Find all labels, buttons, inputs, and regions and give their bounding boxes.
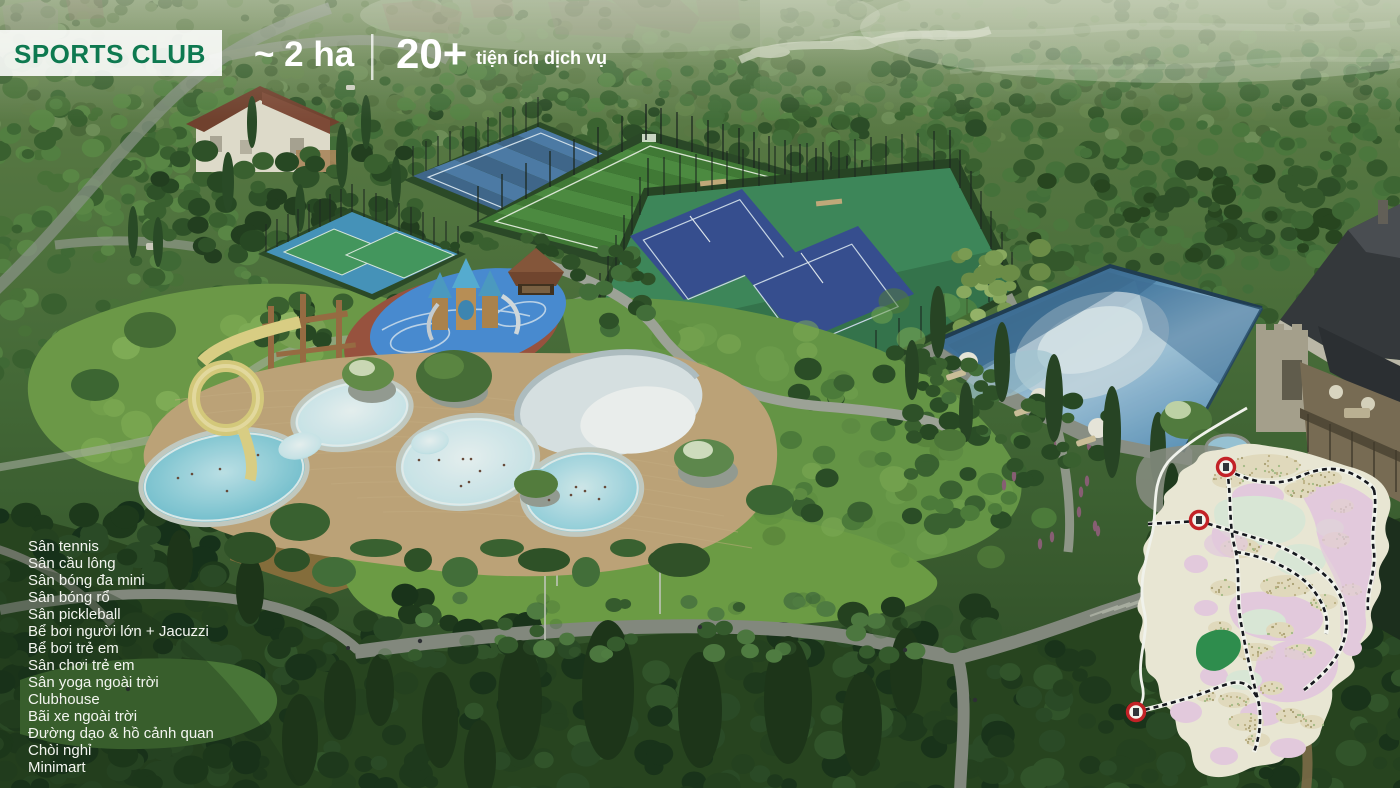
svg-text:Minimart: Minimart	[28, 759, 86, 776]
svg-text:tiện ích dịch vụ: tiện ích dịch vụ	[476, 48, 607, 68]
svg-text:20+: 20+	[396, 30, 467, 77]
svg-text:Sân bóng đa mini: Sân bóng đa mini	[28, 572, 145, 589]
svg-text:Sân chơi trẻ em: Sân chơi trẻ em	[28, 657, 135, 674]
svg-text:Đường dạo & hồ cảnh quan: Đường dạo & hồ cảnh quan	[28, 725, 214, 742]
svg-text:Sân cầu lông: Sân cầu lông	[28, 555, 116, 572]
svg-text:SPORTS CLUB: SPORTS CLUB	[14, 39, 206, 69]
svg-text:Bể bơi người lớn + Jacuzzi: Bể bơi người lớn + Jacuzzi	[28, 623, 209, 640]
svg-text:Bể bơi trẻ em: Bể bơi trẻ em	[28, 640, 119, 657]
svg-text:Sân pickleball: Sân pickleball	[28, 606, 121, 623]
svg-text:Bãi xe ngoài trời: Bãi xe ngoài trời	[28, 708, 137, 725]
svg-text:~ 2 ha: ~ 2 ha	[254, 35, 355, 74]
svg-text:Sân tennis: Sân tennis	[28, 538, 99, 555]
svg-text:Clubhouse: Clubhouse	[28, 691, 100, 708]
svg-text:Sân bóng rổ: Sân bóng rổ	[28, 589, 110, 606]
svg-text:Sân yoga ngoài trời: Sân yoga ngoài trời	[28, 674, 159, 691]
svg-text:Chòi nghỉ: Chòi nghỉ	[28, 742, 92, 759]
